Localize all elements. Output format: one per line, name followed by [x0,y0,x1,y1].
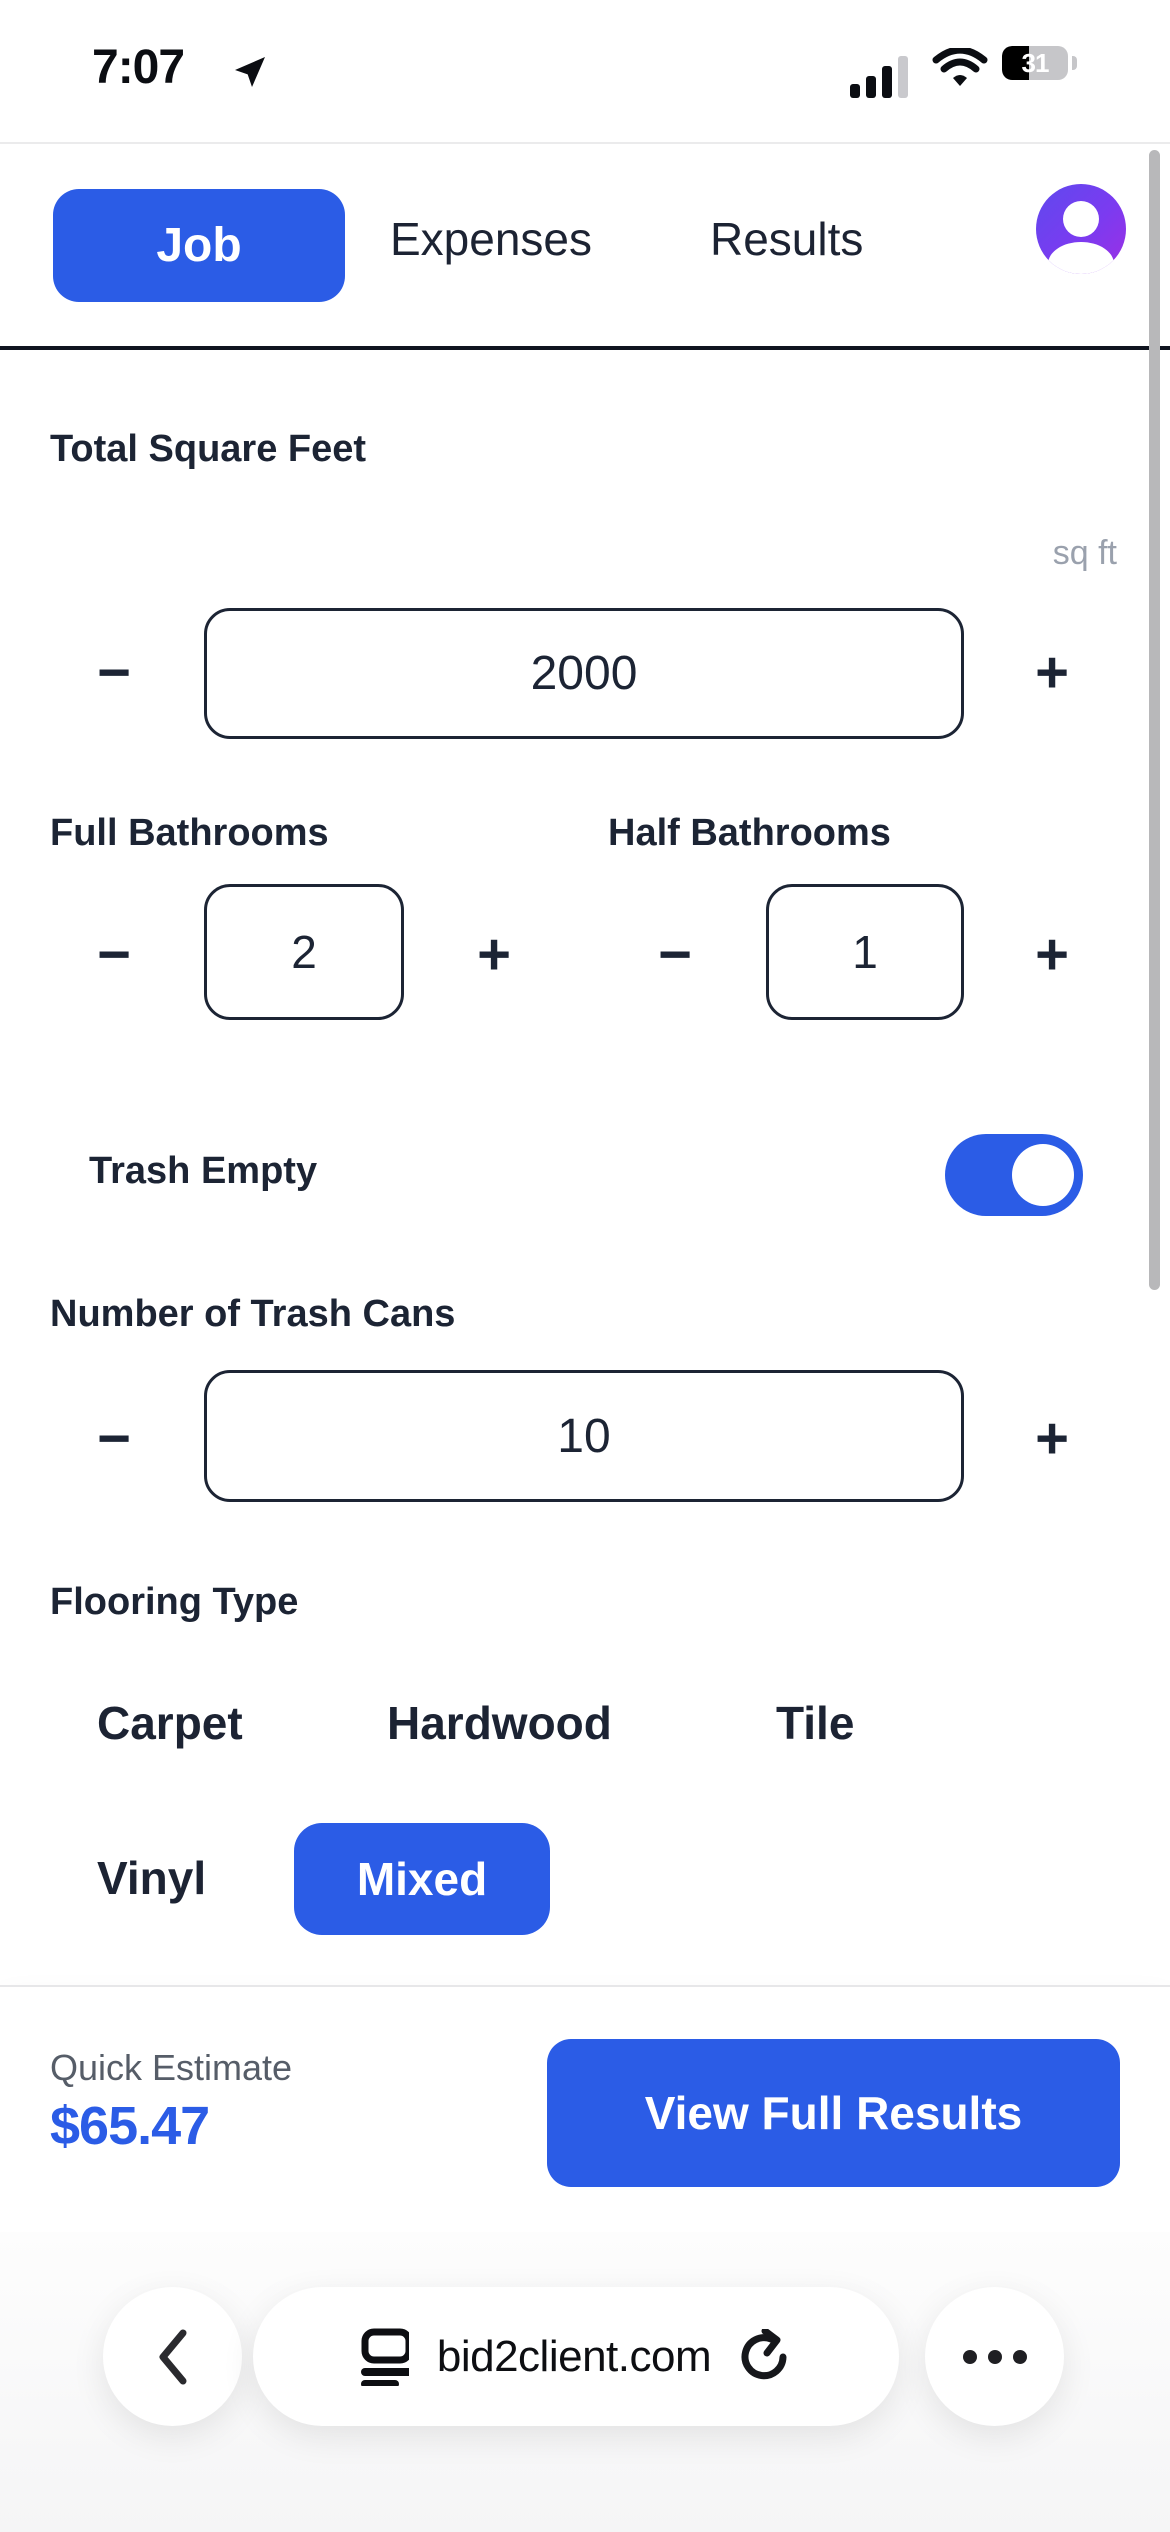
cellular-signal-icon [850,52,908,98]
tab-job[interactable]: Job [53,189,345,302]
refresh-icon[interactable] [739,2329,791,2385]
trash-cans-input[interactable]: 10 [204,1370,964,1502]
half-bathrooms-value: 1 [852,925,878,979]
browser-more-button[interactable] [925,2287,1064,2426]
trash-cans-decrement-button[interactable]: − [82,1396,146,1480]
address-bar[interactable]: bid2client.com [253,2287,899,2426]
trash-empty-toggle[interactable] [945,1134,1083,1216]
chevron-left-icon [153,2325,193,2389]
profile-avatar[interactable] [1036,184,1126,274]
full-bathrooms-input[interactable]: 2 [204,884,404,1020]
flooring-mixed-label: Mixed [357,1852,487,1906]
trash-cans-value: 10 [557,1409,610,1464]
toggle-knob [1012,1144,1074,1206]
flooring-option-hardwood[interactable]: Hardwood [387,1696,612,1750]
wifi-icon [930,48,990,92]
square-feet-unit: sq ft [1053,534,1117,573]
half-bathrooms-input[interactable]: 1 [766,884,964,1020]
page-menu-icon[interactable] [361,2328,409,2386]
square-feet-decrement-button[interactable]: − [82,630,146,714]
location-icon [230,52,270,92]
square-feet-value: 2000 [531,646,638,701]
view-full-results-label: View Full Results [645,2086,1022,2140]
square-feet-increment-button[interactable]: + [1020,630,1084,714]
full-bathrooms-increment-button[interactable]: + [462,912,526,996]
app-header: Job Expenses Results [0,144,1170,350]
quick-estimate-amount: $65.47 [50,2095,209,2157]
trash-cans-increment-button[interactable]: + [1020,1396,1084,1480]
square-feet-label: Total Square Feet [50,428,366,471]
quick-estimate-label: Quick Estimate [50,2047,292,2089]
flooring-type-label: Flooring Type [50,1581,298,1624]
half-bathrooms-increment-button[interactable]: + [1020,912,1084,996]
half-bathrooms-label: Half Bathrooms [608,812,891,855]
flooring-option-vinyl[interactable]: Vinyl [97,1851,206,1905]
tab-expenses[interactable]: Expenses [390,212,592,266]
view-full-results-button[interactable]: View Full Results [547,2039,1120,2187]
half-bathrooms-decrement-button[interactable]: − [643,912,707,996]
full-bathrooms-value: 2 [291,925,317,979]
tab-results-label: Results [710,213,863,265]
flooring-option-tile[interactable]: Tile [776,1696,854,1750]
quick-estimate-bar: Quick Estimate $65.47 View Full Results [0,1985,1170,2232]
full-bathrooms-decrement-button[interactable]: − [82,912,146,996]
battery-percent: 31 [1002,46,1068,80]
tab-results[interactable]: Results [710,212,863,266]
tab-job-label: Job [156,218,241,273]
iphone-screen: 7:07 31 Job Expenses Results Total Squar… [0,0,1170,2532]
avatar-person-icon [1063,201,1099,237]
page-scrollbar[interactable] [1149,150,1160,1290]
flooring-option-carpet[interactable]: Carpet [97,1696,243,1750]
status-time: 7:07 [92,40,184,95]
battery-icon: 31 [1002,46,1068,80]
safari-toolbar: bid2client.com [0,2232,1170,2532]
battery-nub [1072,56,1077,70]
square-feet-input[interactable]: 2000 [204,608,964,739]
url-text: bid2client.com [437,2332,711,2382]
trash-empty-label: Trash Empty [89,1150,317,1193]
browser-back-button[interactable] [103,2287,242,2426]
ellipsis-icon [963,2350,977,2364]
trash-cans-label: Number of Trash Cans [50,1293,455,1336]
flooring-option-mixed-selected[interactable]: Mixed [294,1823,550,1935]
tab-expenses-label: Expenses [390,213,592,265]
full-bathrooms-label: Full Bathrooms [50,812,329,855]
